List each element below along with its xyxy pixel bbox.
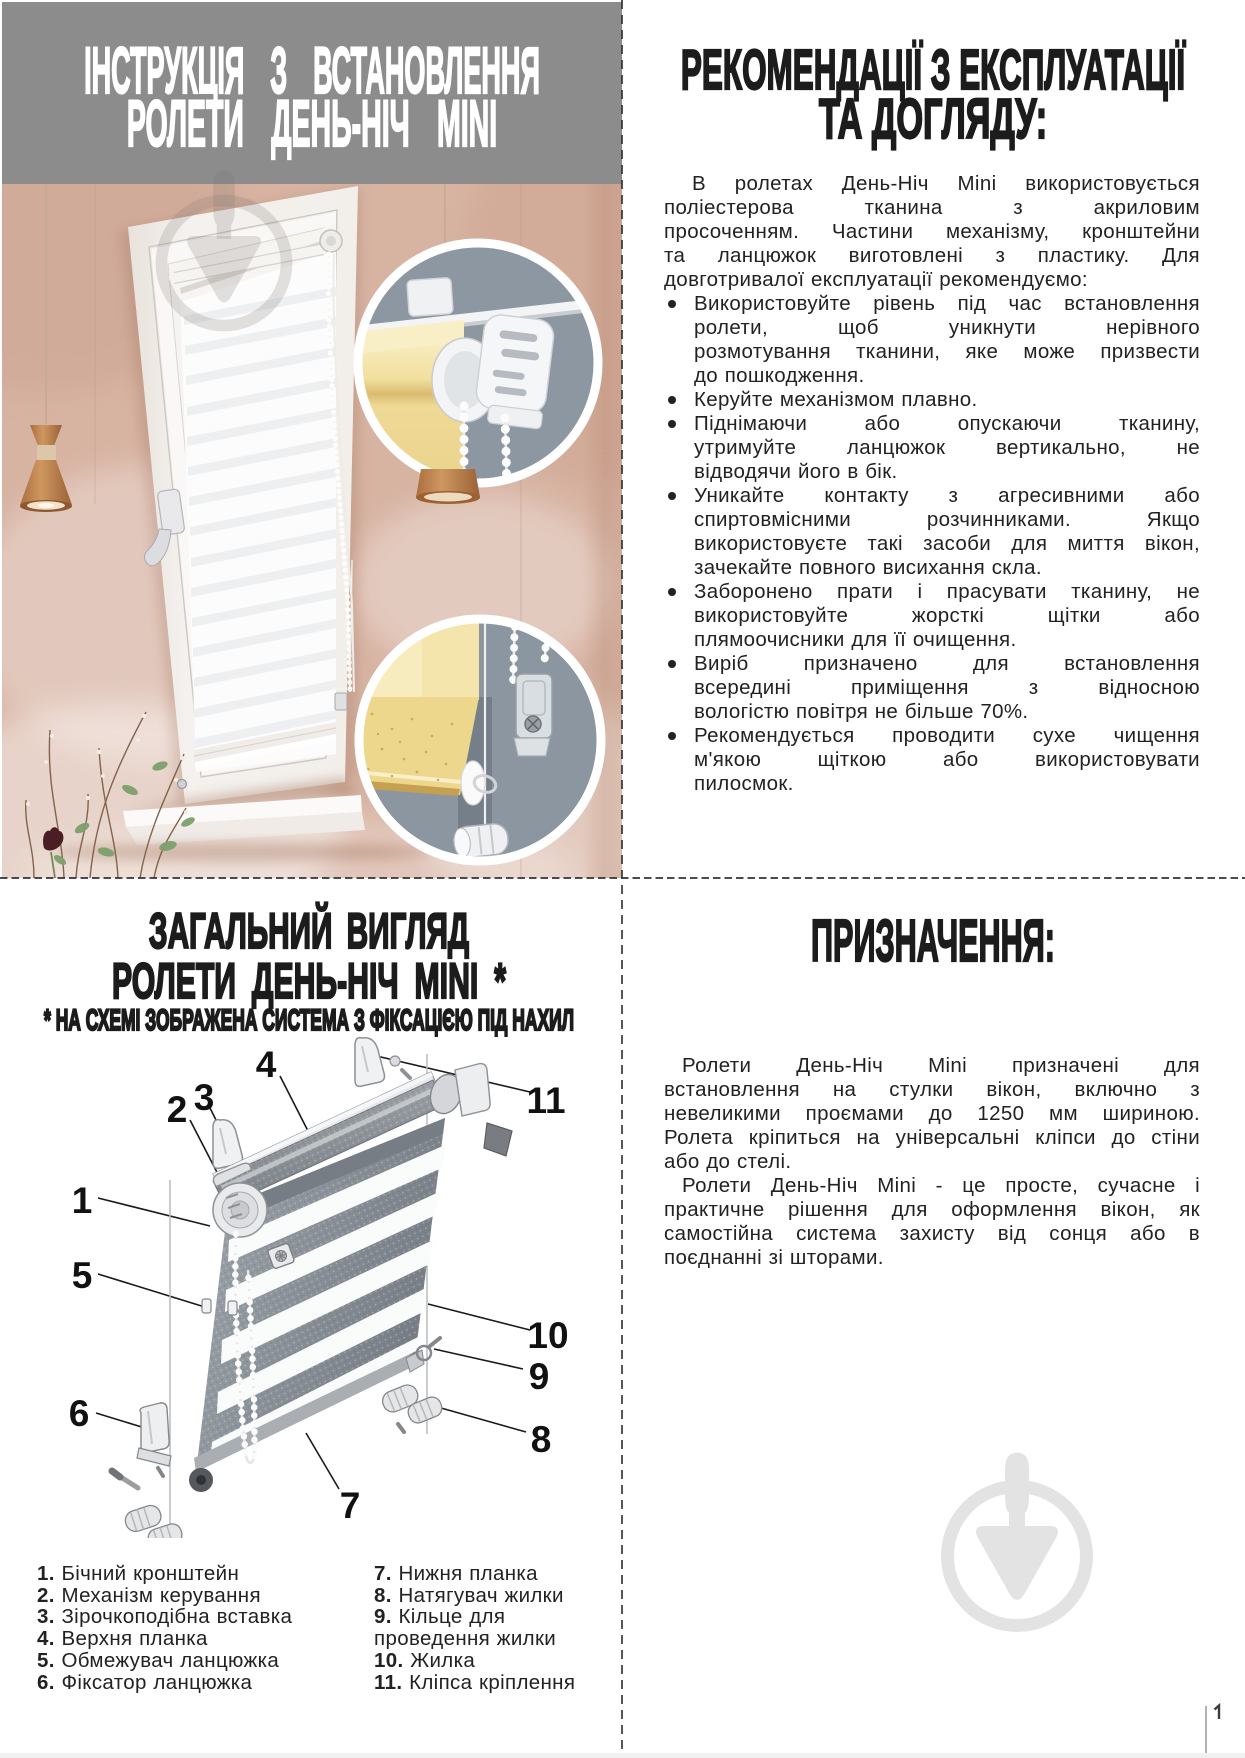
svg-text:5: 5 [72,1255,93,1296]
svg-text:6: 6 [69,1393,90,1434]
svg-text:9: 9 [529,1356,550,1397]
svg-text:10: 10 [527,1315,568,1356]
svg-text:1: 1 [72,1180,93,1221]
svg-text:3: 3 [194,1077,215,1118]
svg-text:2: 2 [167,1089,188,1130]
svg-text:11: 11 [526,1080,565,1121]
svg-text:4: 4 [256,1044,277,1085]
svg-text:7: 7 [340,1485,361,1526]
svg-text:8: 8 [531,1419,552,1460]
